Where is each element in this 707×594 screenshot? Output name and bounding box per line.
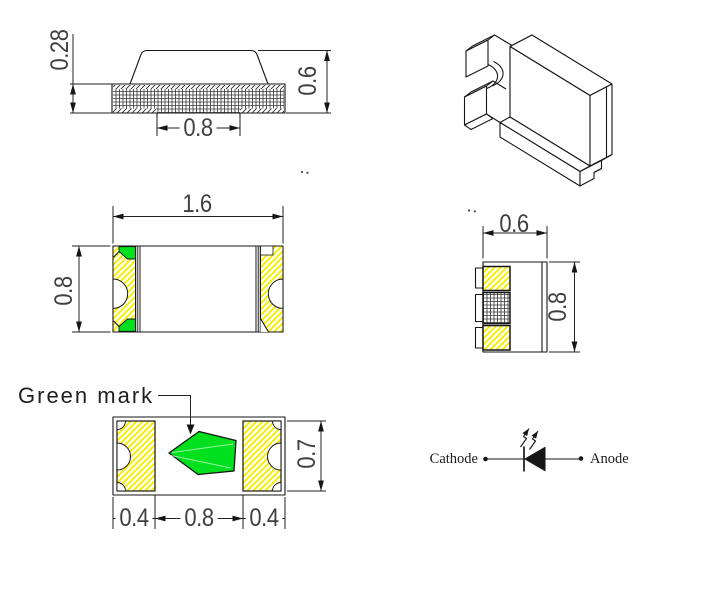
- dim-pad-width: 0.7: [294, 419, 320, 489]
- dim-package-length: 1.6: [169, 191, 225, 217]
- side-view-drawing: [70, 34, 331, 174]
- dim-end-width: 0.6: [485, 211, 541, 237]
- led-polarity-symbol: [483, 429, 583, 472]
- drawing-lineart: [0, 0, 707, 594]
- dim-substrate-thickness: 0.28: [47, 14, 73, 84]
- light-emission-arrows-icon: [521, 429, 539, 450]
- dim-total-height: 0.6: [295, 46, 321, 116]
- dim-pad-gap: 0.8: [181, 506, 218, 530]
- anode-label: Anode: [590, 451, 629, 468]
- cathode-dot: [483, 457, 488, 462]
- led-diode-icon: [524, 447, 546, 472]
- dim-end-height: 0.8: [545, 272, 571, 342]
- anode-dot: [579, 456, 584, 461]
- cathode-label: Cathode: [414, 451, 478, 468]
- green-mark-label: Green mark: [18, 383, 154, 409]
- dim-left-pad: 0.4: [116, 506, 153, 530]
- dim-bottom-pad-gap: 0.8: [180, 116, 217, 140]
- isometric-view-drawing: [465, 35, 613, 186]
- dim-package-width: 0.8: [51, 256, 77, 326]
- dim-right-pad: 0.4: [246, 506, 283, 530]
- led-package-drawing: 0.28 0.6 0.8 1.6 0.8 0.6 0.8 0.4 0.8 0.4…: [0, 0, 707, 594]
- top-view-drawing: [72, 206, 283, 332]
